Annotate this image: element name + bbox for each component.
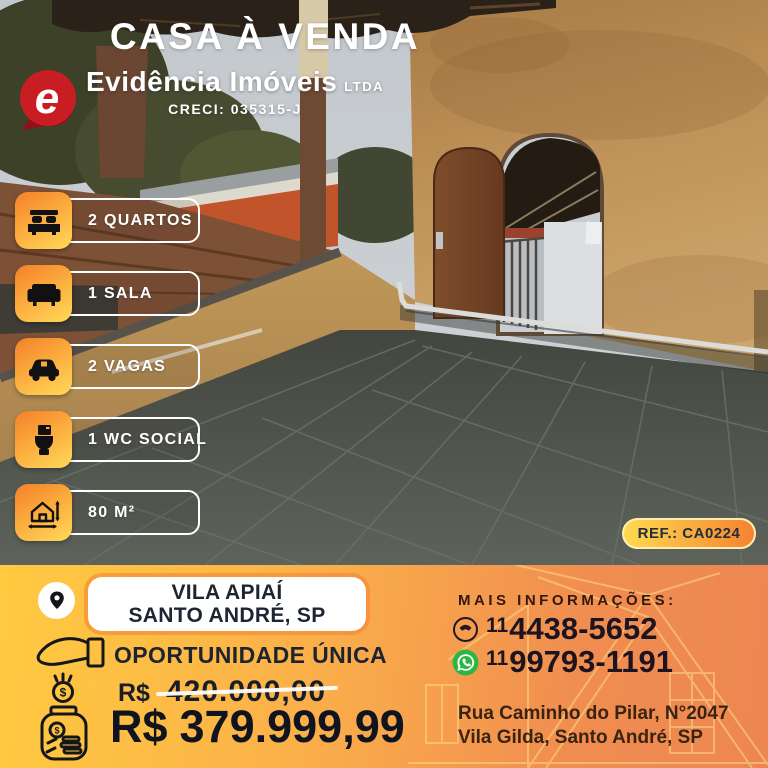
- feature-bathroom-label: 1 WC SOCIAL: [50, 417, 200, 462]
- reference-badge: REF.: CA0224: [622, 518, 756, 549]
- listing-flyer: CASA À VENDA e Evidência Imóveis LTDA CR…: [0, 0, 768, 768]
- feature-bedrooms: 2 QUARTOS: [15, 192, 200, 249]
- feature-bathroom: 1 WC SOCIAL: [15, 411, 200, 468]
- feature-livingroom-label: 1 SALA: [50, 271, 200, 316]
- phone-icon: [452, 616, 479, 643]
- opportunity-label: OPORTUNIDADE ÚNICA: [114, 642, 387, 669]
- feature-bedrooms-label: 2 QUARTOS: [50, 198, 200, 243]
- phone-row[interactable]: 114438-5652: [452, 611, 657, 647]
- sofa-icon: [15, 265, 72, 322]
- area-icon: [15, 484, 72, 541]
- address-line1: Rua Caminho do Pilar, N°2047: [458, 702, 729, 726]
- phone1-prefix: 11: [486, 614, 508, 637]
- bed-icon: [15, 192, 72, 249]
- address: Rua Caminho do Pilar, N°2047 Vila Gilda,…: [458, 702, 729, 751]
- feature-area: 80 M²: [15, 484, 200, 541]
- page-title: CASA À VENDA: [40, 16, 490, 58]
- feature-list: 2 QUARTOS 1 SALA: [15, 192, 200, 541]
- phone2-number: 99793-1191: [509, 644, 673, 679]
- car-icon: [15, 338, 72, 395]
- feature-parking-label: 2 VAGAS: [50, 344, 200, 389]
- svg-text:$: $: [54, 726, 59, 736]
- whatsapp-row[interactable]: 1199793-1191: [452, 644, 673, 680]
- svg-text:$: $: [60, 686, 67, 700]
- agency-logo: e Evidência Imóveis LTDA CRECI: 035315-J: [14, 66, 384, 134]
- location-box: VILA APIAÍ SANTO ANDRÉ, SP: [88, 577, 366, 631]
- footer-band: VILA APIAÍ SANTO ANDRÉ, SP $ $ OPORTUNID…: [0, 565, 768, 768]
- feature-area-label: 80 M²: [50, 490, 200, 535]
- location-line1: VILA APIAÍ: [171, 581, 282, 604]
- feature-livingroom: 1 SALA: [15, 265, 200, 322]
- feature-parking: 2 VAGAS: [15, 338, 200, 395]
- info-heading: MAIS INFORMAÇÕES:: [458, 592, 677, 609]
- brand-name: Evidência Imóveis: [86, 66, 337, 98]
- new-price-currency: R$: [110, 701, 168, 752]
- creci-number: CRECI: 035315-J: [86, 101, 384, 117]
- location-line2: SANTO ANDRÉ, SP: [128, 604, 325, 627]
- new-price: R$379.999,99: [110, 701, 405, 753]
- phone2-prefix: 11: [486, 647, 508, 670]
- whatsapp-icon: [452, 649, 479, 676]
- location-pin-icon: [38, 582, 75, 619]
- address-line2: Vila Gilda, Santo André, SP: [458, 726, 729, 750]
- svg-text:e: e: [35, 74, 59, 123]
- phone1-number: 4438-5652: [509, 611, 657, 646]
- brand-suffix: LTDA: [344, 79, 384, 94]
- new-price-value: 379.999,99: [180, 701, 405, 752]
- money-savings-icon: $ $: [30, 631, 110, 763]
- agency-emblem-icon: e: [14, 66, 78, 134]
- toilet-icon: [15, 411, 72, 468]
